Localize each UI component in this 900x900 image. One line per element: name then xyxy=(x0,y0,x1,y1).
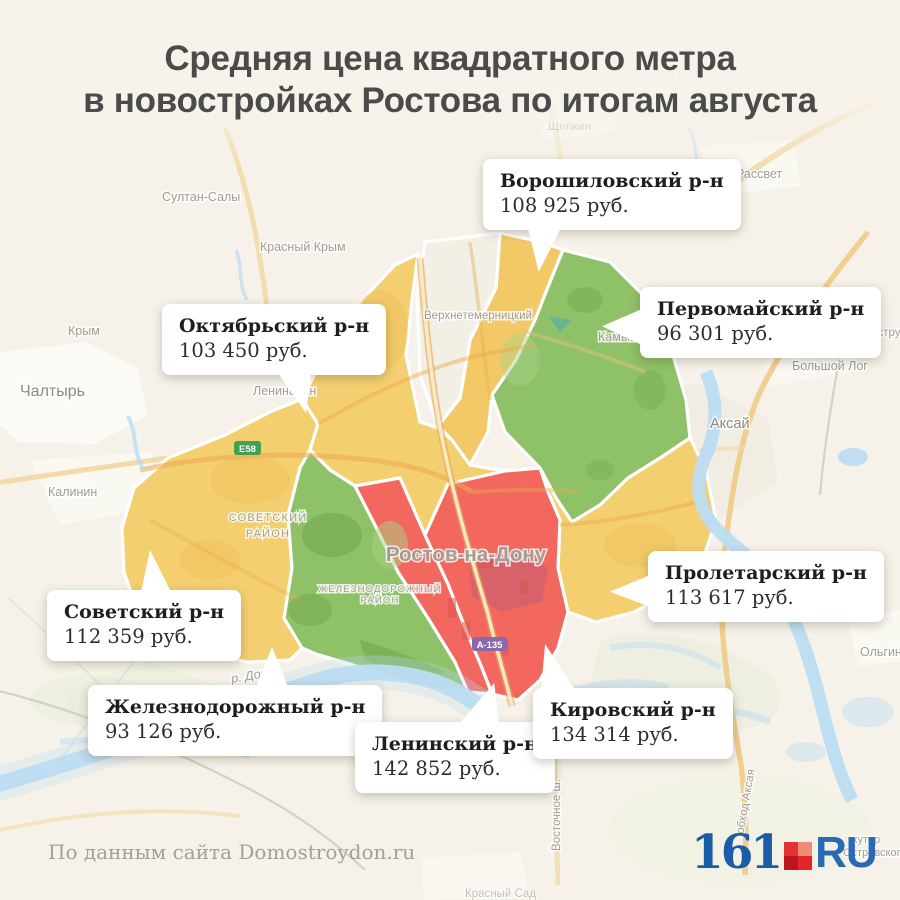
district-price: 113 617 руб. xyxy=(665,585,867,610)
map-label-rostov-na-donu: Ростов-на-Дону xyxy=(386,543,547,566)
map-label-sovetsky-area-1: СОВЕТСКИЙ xyxy=(229,511,308,524)
district-price: 142 852 руб. xyxy=(372,756,538,781)
map-label-kalinin: Калинин xyxy=(48,485,97,499)
callout-voroshilovsky: Ворошиловский р-н 108 925 руб. xyxy=(483,159,741,230)
map-label-verkhnetemernitsky: Верхнетемерницкий xyxy=(424,310,532,322)
district-price: 103 450 руб. xyxy=(179,338,369,363)
title-overlay: Средняя цена квадратного метра в новостр… xyxy=(0,0,900,165)
logo-suffix: RU xyxy=(815,833,877,873)
161ru-logo: 161 RU xyxy=(691,833,877,873)
logo-number: 161 xyxy=(691,833,780,873)
district-price: 93 126 руб. xyxy=(105,719,365,744)
e58-badge-label: Е58 xyxy=(239,444,256,455)
callout-proletarsky: Пролетарский р-н 113 617 руб. xyxy=(648,551,884,622)
callout-pervomaysky: Первомайский р-н 96 301 руб. xyxy=(640,287,881,358)
callout-sovetsky: Советский р-н 112 359 руб. xyxy=(47,590,241,661)
map-label-bolshoy-log: Большой Лог xyxy=(792,359,868,373)
map-label-rassvet: Рассвет xyxy=(736,167,782,181)
map-label-olginskaya: Ольгинская xyxy=(860,645,900,659)
data-source-note: По данным сайта Domostroydon.ru xyxy=(48,840,415,864)
district-name: Ворошиловский р-н xyxy=(500,169,724,193)
district-name: Советский р-н xyxy=(64,600,224,624)
district-price: 112 359 руб. xyxy=(64,624,224,649)
map-label-sultan-saly: Султан-Салы xyxy=(162,190,240,204)
map-label-krasny-sad: Красный Сад xyxy=(465,888,536,900)
district-name: Железнодорожный р-н xyxy=(105,695,365,719)
map-label-krasny-krym: Красный Крым xyxy=(260,240,346,254)
district-name: Октябрьский р-н xyxy=(179,314,369,338)
infographic-root: Е58 А-135 Чалтырь Калинин Крым Султан-Са… xyxy=(0,0,900,900)
title-line-1: Средняя цена квадратного метра xyxy=(0,38,900,80)
district-name: Кировский р-н xyxy=(550,698,716,722)
callout-kirovsky: Кировский р-н 134 314 руб. xyxy=(533,688,733,759)
district-name: Пролетарский р-н xyxy=(665,561,867,585)
a135-badge-label: А-135 xyxy=(477,640,504,651)
title-line-2: в новостройках Ростова по итогам августа xyxy=(0,80,900,122)
callout-oktyabrsky: Октябрьский р-н 103 450 руб. xyxy=(162,304,386,375)
district-name: Первомайский р-н xyxy=(657,297,864,321)
callout-leninsky: Ленинский р-н 142 852 руб. xyxy=(355,722,555,793)
map-label-krym: Крым xyxy=(68,324,100,338)
district-price: 96 301 руб. xyxy=(657,321,864,346)
district-price: 108 925 руб. xyxy=(500,193,724,218)
logo-red-square-icon xyxy=(784,842,812,870)
district-name: Ленинский р-н xyxy=(372,732,538,756)
map-label-sovetsky-area-2: РАЙОН xyxy=(246,527,290,540)
map-label-aksay: Аксай xyxy=(710,416,750,432)
map-label-chaltyr: Чалтырь xyxy=(20,383,85,400)
callout-zheleznodorozhny: Железнодорожный р-н 93 126 руб. xyxy=(88,685,382,756)
map-label-zhel-area-1: ЖЕЛЕЗНОДОРОЖНЫЙ xyxy=(318,583,441,595)
map-label-zhel-area-2: РАЙОН xyxy=(360,594,399,606)
district-price: 134 314 руб. xyxy=(550,722,716,747)
